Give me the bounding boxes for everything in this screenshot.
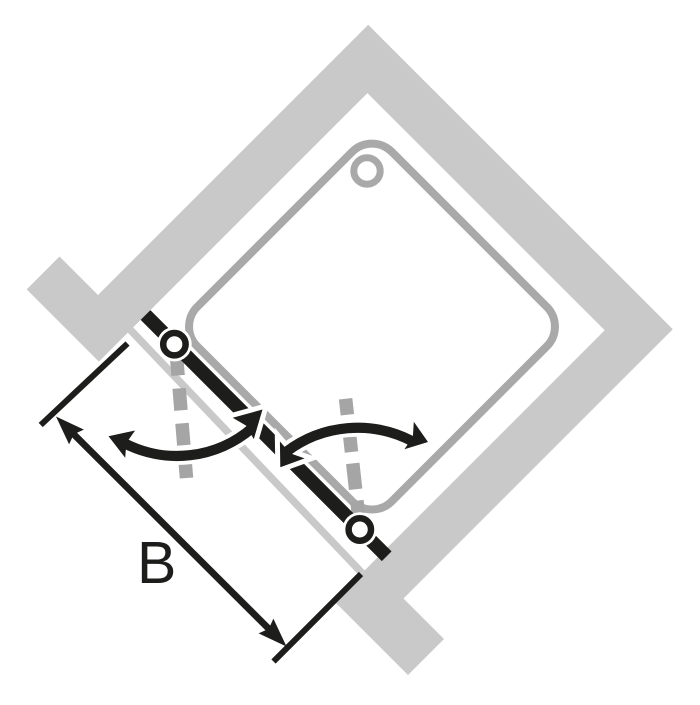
svg-text:B: B	[137, 530, 176, 596]
